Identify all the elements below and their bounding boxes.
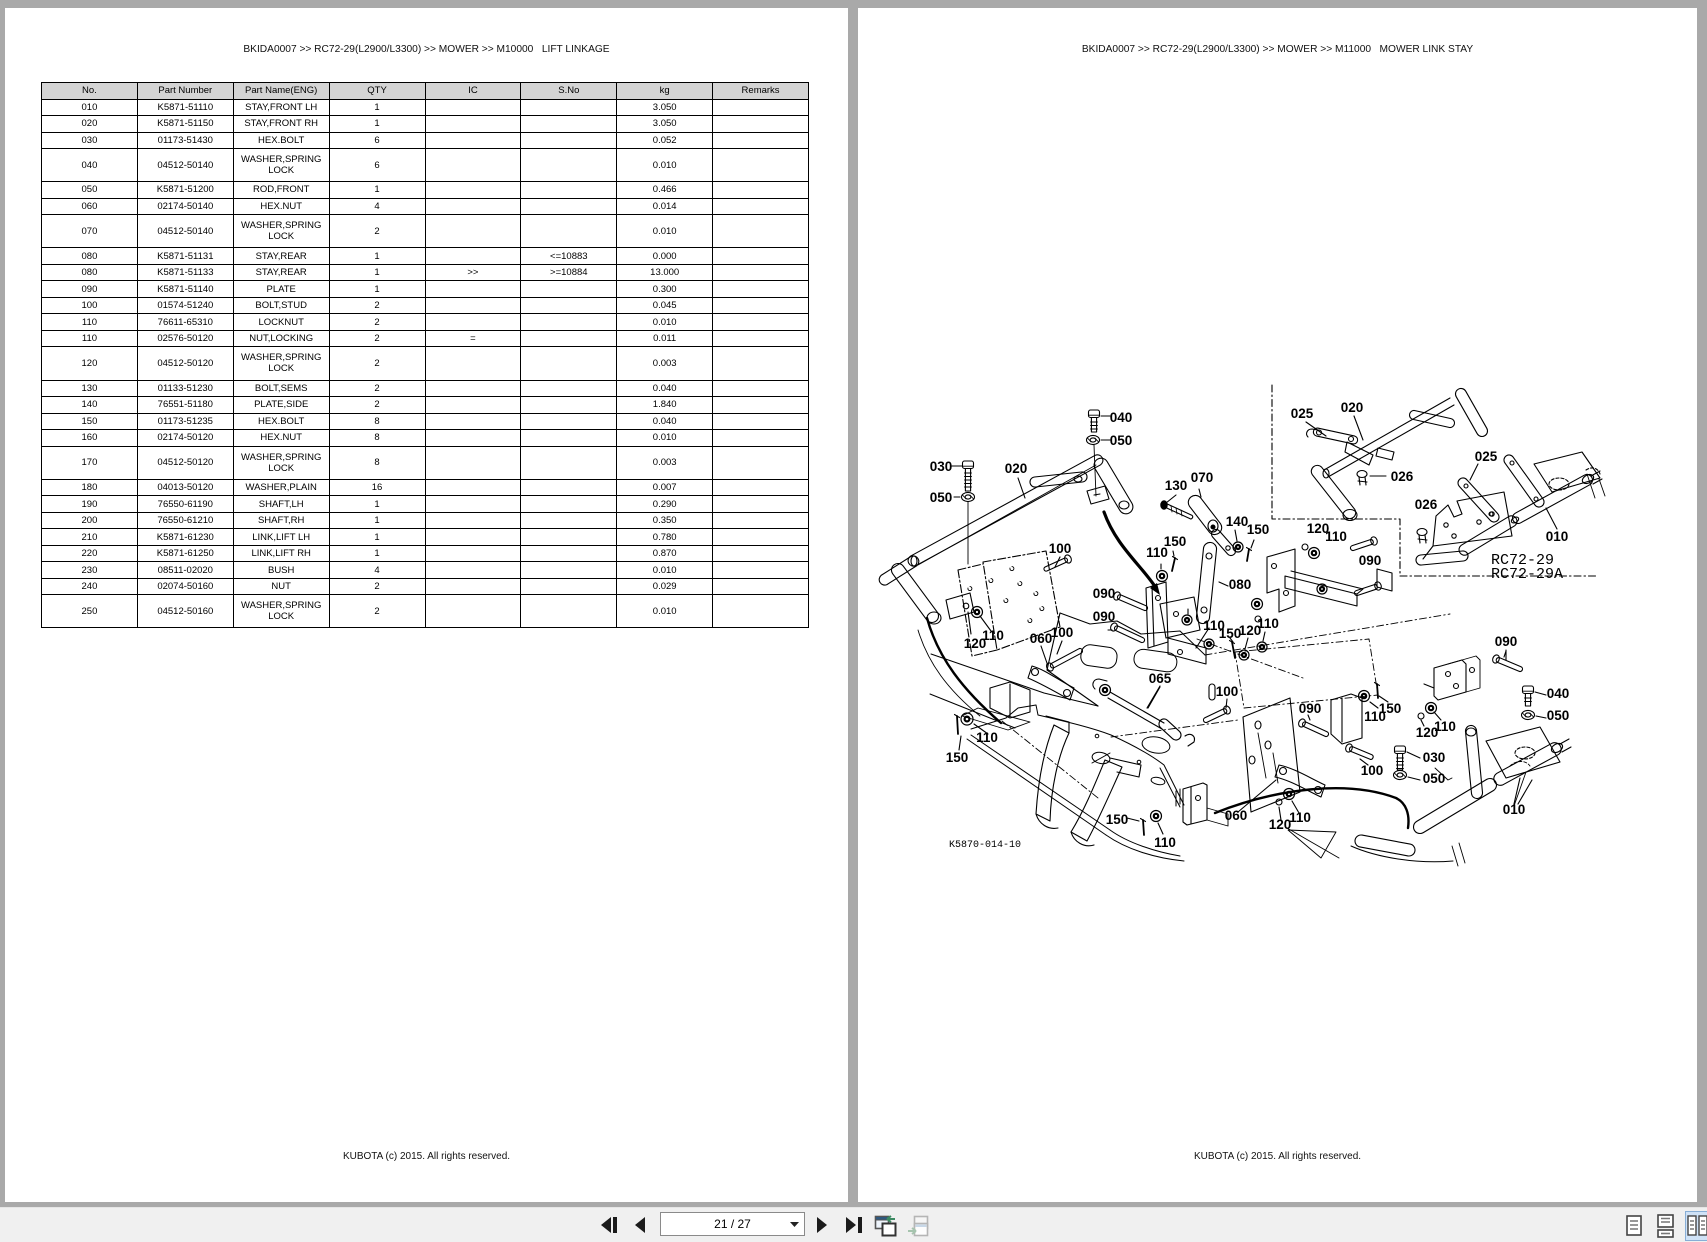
svg-text:010: 010 [1546, 529, 1569, 544]
svg-text:110: 110 [1325, 529, 1347, 544]
svg-text:025: 025 [1291, 406, 1314, 421]
svg-text:130: 130 [1165, 478, 1188, 493]
svg-text:100: 100 [1049, 541, 1072, 556]
svg-text:110: 110 [976, 730, 998, 745]
svg-text:040: 040 [1110, 410, 1133, 425]
svg-text:050: 050 [930, 490, 953, 505]
svg-text:110: 110 [1289, 810, 1311, 825]
svg-text:090: 090 [1093, 609, 1116, 624]
svg-text:090: 090 [1093, 586, 1116, 601]
svg-text:025: 025 [1475, 449, 1498, 464]
svg-text:150: 150 [946, 750, 969, 765]
svg-text:080: 080 [1229, 577, 1252, 592]
svg-text:100: 100 [1361, 763, 1384, 778]
svg-text:120: 120 [1269, 817, 1292, 832]
svg-text:110: 110 [1154, 835, 1176, 850]
svg-text:150: 150 [1247, 522, 1270, 537]
svg-text:060: 060 [1225, 808, 1248, 823]
svg-text:070: 070 [1191, 470, 1214, 485]
svg-text:110: 110 [1146, 545, 1168, 560]
svg-text:100: 100 [1216, 684, 1239, 699]
svg-text:050: 050 [1547, 708, 1570, 723]
svg-text:026: 026 [1391, 469, 1414, 484]
svg-text:050: 050 [1110, 433, 1133, 448]
svg-text:090: 090 [1495, 634, 1518, 649]
svg-text:RC72-29A: RC72-29A [1491, 566, 1563, 583]
svg-text:090: 090 [1359, 553, 1382, 568]
svg-text:030: 030 [930, 459, 953, 474]
svg-text:140: 140 [1226, 514, 1249, 529]
svg-text:020: 020 [1005, 461, 1028, 476]
svg-text:150: 150 [1379, 701, 1402, 716]
svg-text:K5870-014-10: K5870-014-10 [949, 840, 1021, 851]
svg-text:110: 110 [1434, 719, 1456, 734]
svg-text:065: 065 [1149, 671, 1172, 686]
svg-text:110: 110 [982, 628, 1004, 643]
svg-text:060: 060 [1030, 631, 1053, 646]
svg-text:020: 020 [1341, 400, 1364, 415]
svg-text:026: 026 [1415, 497, 1438, 512]
svg-text:110: 110 [1257, 616, 1279, 631]
svg-text:030: 030 [1423, 750, 1446, 765]
svg-text:150: 150 [1106, 812, 1129, 827]
svg-text:090: 090 [1299, 701, 1322, 716]
svg-text:050: 050 [1423, 771, 1446, 786]
svg-text:100: 100 [1051, 625, 1074, 640]
svg-text:040: 040 [1547, 686, 1570, 701]
